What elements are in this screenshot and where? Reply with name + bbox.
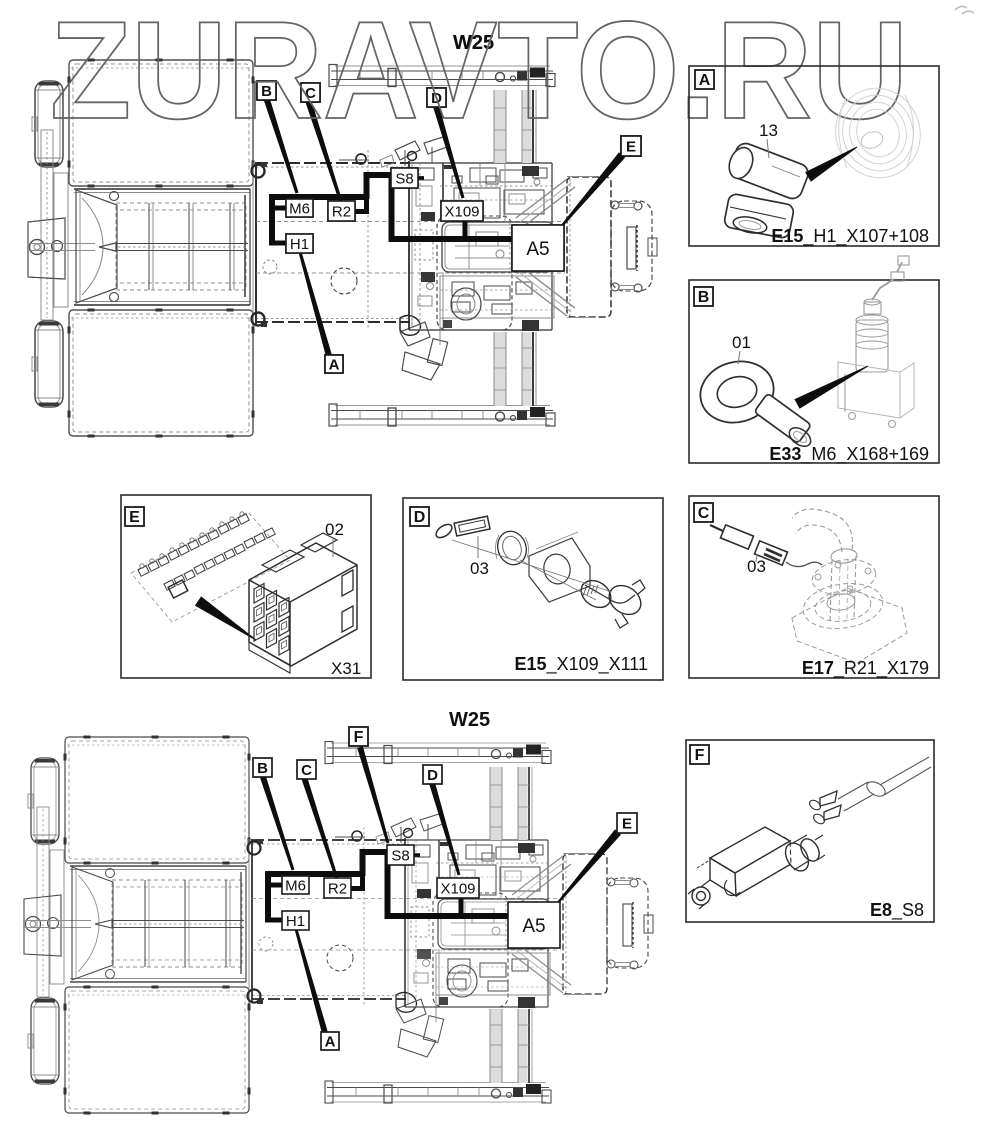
svg-text:02: 02 bbox=[325, 520, 344, 539]
svg-text:D: D bbox=[414, 509, 426, 526]
svg-text:E33_M6_X168+169: E33_M6_X168+169 bbox=[769, 444, 929, 465]
svg-text:F: F bbox=[695, 747, 705, 764]
svg-text:B: B bbox=[698, 289, 710, 306]
svg-text:ZURAVTO.RU: ZURAVTO.RU bbox=[50, 0, 908, 148]
svg-text:E: E bbox=[129, 509, 140, 526]
svg-text:03: 03 bbox=[470, 559, 489, 578]
svg-text:E15_H1_X107+108: E15_H1_X107+108 bbox=[771, 226, 929, 247]
svg-text:E8_S8: E8_S8 bbox=[870, 900, 924, 921]
svg-text:F: F bbox=[354, 729, 364, 746]
svg-text:E15_X109_X111: E15_X109_X111 bbox=[515, 654, 648, 675]
svg-text:X31: X31 bbox=[331, 659, 361, 678]
svg-text:01: 01 bbox=[732, 333, 751, 352]
svg-text:E17_R21_X179: E17_R21_X179 bbox=[802, 658, 929, 679]
svg-text:C: C bbox=[698, 505, 710, 522]
svg-text:A: A bbox=[699, 72, 711, 89]
svg-text:13: 13 bbox=[759, 121, 778, 140]
